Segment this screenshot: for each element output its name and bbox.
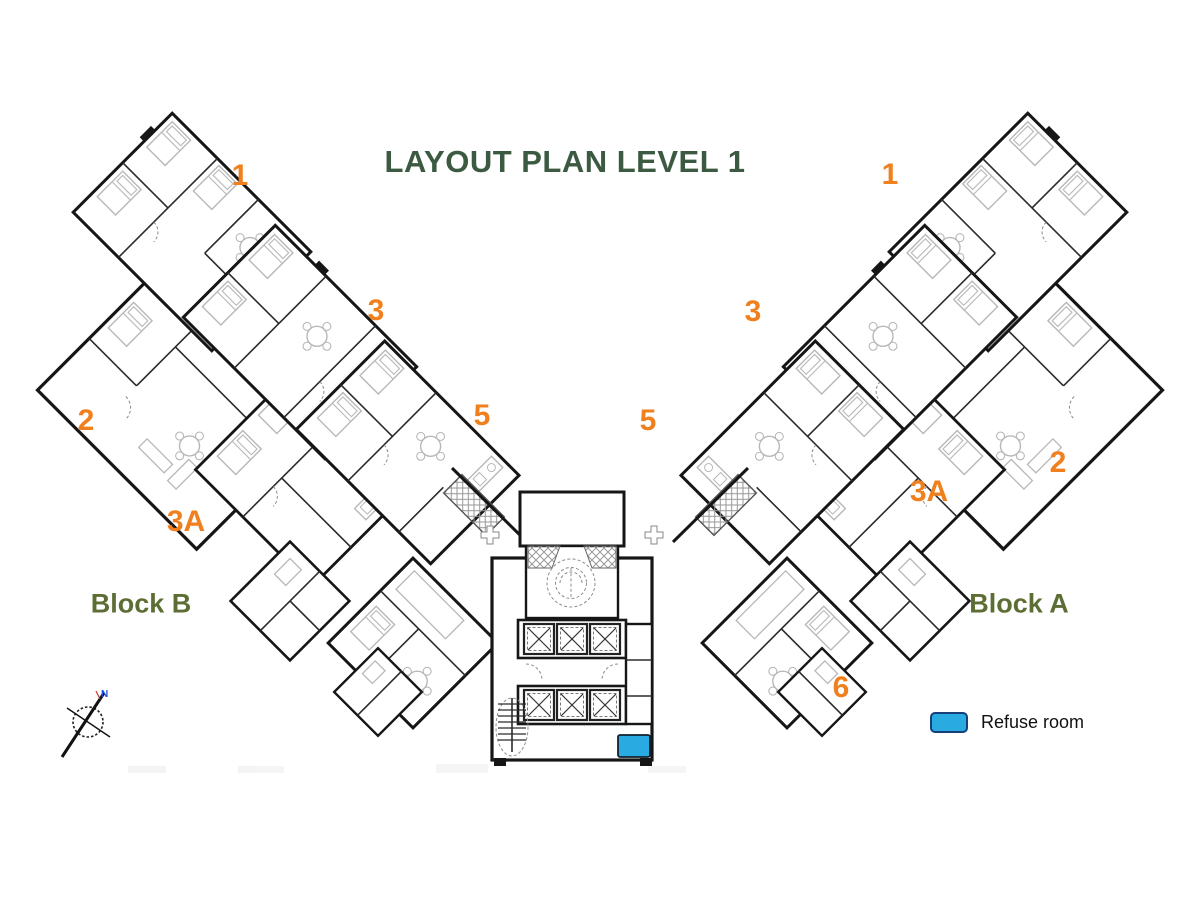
- column: [645, 526, 663, 544]
- faint-watermark: [128, 764, 686, 773]
- wing-block-a: [673, 109, 1162, 736]
- compass-n-label: N: [101, 689, 108, 700]
- refuse-room-plan: [618, 735, 650, 757]
- entrance-canopy: [520, 492, 624, 546]
- layout-plan-page: N LAYOUT PLAN LEVEL 1 13523A1353A26Block…: [0, 0, 1200, 900]
- north-arrow-compass-icon: N: [62, 689, 110, 757]
- lift-bank-upper: [518, 620, 626, 658]
- wing-block-b: [38, 109, 527, 736]
- legend-label: Refuse room: [981, 712, 1084, 733]
- legend: Refuse room: [930, 712, 1084, 733]
- refuse-room-swatch: [930, 712, 968, 733]
- floor-plan-drawing: N: [0, 0, 1200, 900]
- page-title: LAYOUT PLAN LEVEL 1: [385, 144, 746, 180]
- central-core: [481, 492, 663, 766]
- service-room: [626, 624, 652, 724]
- lift-bank-lower: [518, 686, 626, 724]
